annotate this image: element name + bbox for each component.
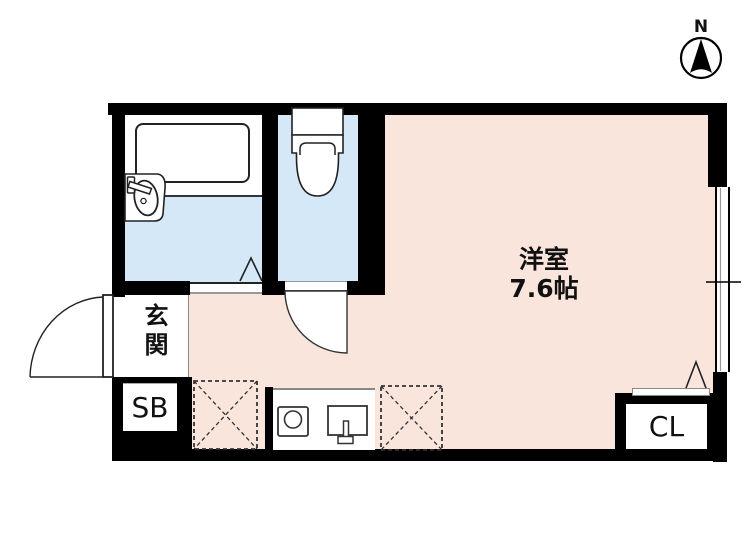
- toilet-floor: [278, 115, 358, 282]
- wall-stub-toilet-bottom: [347, 281, 385, 295]
- wall-bathroom-bottom: [112, 281, 190, 295]
- wall-toilet-right: [358, 103, 385, 295]
- kitchen-counter: [273, 388, 375, 450]
- bathroom-folding-door: [190, 282, 262, 294]
- closet-label: CL: [626, 404, 707, 449]
- wall-stub-toilet-left: [262, 281, 285, 295]
- living-room-label: 洋室 7.6帖: [454, 245, 634, 303]
- wall-left: [112, 103, 125, 297]
- toilet-door-opening: [285, 281, 347, 291]
- closet-door: [632, 388, 710, 396]
- bathtub-platform: [125, 115, 262, 197]
- living-room-name: 洋室: [454, 245, 634, 274]
- living-room-size: 7.6帖: [454, 274, 634, 303]
- wall-top: [108, 103, 727, 115]
- wall-top-right-column: [708, 103, 727, 187]
- shoe-box-label: SB: [123, 383, 177, 431]
- window: [715, 187, 730, 372]
- entrance-label: 玄関: [143, 302, 170, 361]
- wall-bath-toilet-divider: [262, 103, 278, 295]
- wall-kitchen-stub: [265, 387, 273, 455]
- north-compass-icon: [681, 38, 721, 78]
- floor-plan: CL SB: [0, 0, 750, 550]
- entrance-swing-door: [30, 295, 113, 377]
- compass-north-label: N: [679, 17, 723, 37]
